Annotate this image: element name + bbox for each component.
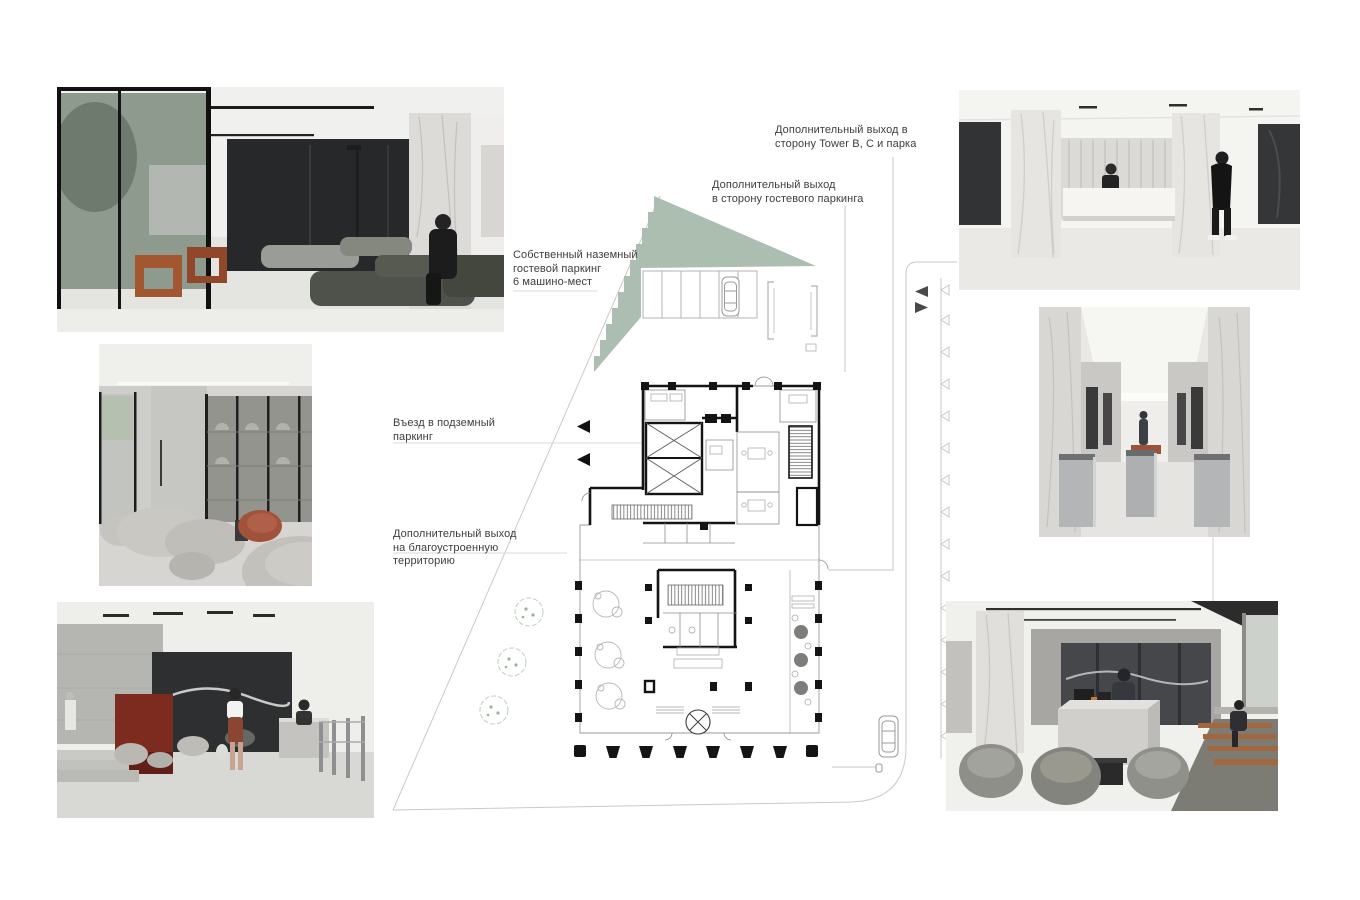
- presentation-board: Дополнительный выход в сторону Tower B, …: [0, 0, 1360, 900]
- label-line: 6 машино-мест: [513, 276, 638, 290]
- building-outline: [580, 386, 819, 733]
- label-entry-underground: Въезд в подземный паркинг: [393, 417, 495, 444]
- road-arrow-icons: [915, 286, 928, 313]
- label-line: Въезд в подземный: [393, 417, 495, 431]
- planters: [792, 615, 811, 705]
- render-photo-lobby-seating: [57, 87, 504, 332]
- elevator-core: [646, 423, 702, 494]
- label-line: сторону Tower B, C и парка: [775, 138, 916, 152]
- render-photo-reception-white: [959, 90, 1300, 290]
- render-photo-cafe-lounge: [946, 601, 1278, 811]
- label-exit-territory: Дополнительный выход на благоустроенную …: [393, 528, 517, 569]
- render-photo-entrance-turnstiles: [57, 602, 374, 818]
- label-exit-guest: Дополнительный выход в сторону гостевого…: [712, 179, 863, 206]
- render-photo-lounge-glass: [99, 344, 312, 586]
- parking-stalls: [643, 271, 757, 318]
- label-line: Дополнительный выход: [393, 528, 517, 542]
- label-line: паркинг: [393, 431, 495, 445]
- car-icon: [722, 277, 739, 316]
- label-line: Дополнительный выход: [712, 179, 863, 193]
- columns: [575, 382, 822, 722]
- car-icon: [876, 716, 898, 772]
- label-line: гостевой паркинг: [513, 263, 638, 277]
- canopy-columns: [574, 745, 818, 758]
- label-line: Собственный наземный: [513, 249, 638, 263]
- label-line: на благоустроенную: [393, 542, 517, 556]
- shaft-boxes: [700, 414, 731, 530]
- label-own-parking: Собственный наземный гостевой паркинг 6 …: [513, 249, 638, 290]
- revolving-door-icon: [686, 710, 710, 734]
- label-exit-tower: Дополнительный выход в сторону Tower B, …: [775, 124, 916, 151]
- ramp-structure: [768, 282, 817, 351]
- tree-icon: [480, 598, 543, 724]
- lounge-seating: [593, 591, 625, 709]
- leader-lines: [828, 157, 893, 767]
- render-photo-elevator-corridor: [1039, 307, 1250, 537]
- label-line: Дополнительный выход в: [775, 124, 916, 138]
- label-line: в сторону гостевого паркинга: [712, 193, 863, 207]
- label-line: территорию: [393, 555, 517, 569]
